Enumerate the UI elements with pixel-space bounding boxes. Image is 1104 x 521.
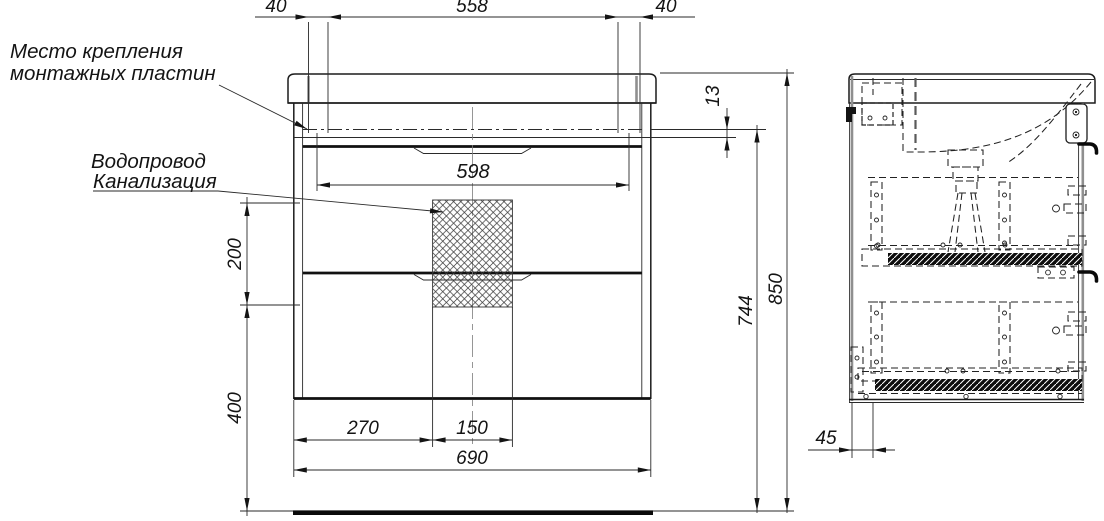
callouts: Место крепления монтажных пластин Водопр… — [10, 40, 443, 215]
dim-top-span: 558 — [456, 0, 488, 17]
pipe-zone-hatch — [433, 200, 513, 307]
dim-side-back-offset: 45 — [815, 428, 837, 449]
dim-plate-span: 598 — [456, 161, 489, 183]
extension-lines — [240, 22, 873, 477]
callout-mounting-line2: монтажных пластин — [10, 62, 216, 85]
dim-pipe-zone-left: 270 — [346, 418, 379, 439]
floor-line — [240, 511, 794, 513]
dim-plate-drop: 13 — [703, 85, 724, 107]
callout-mounting-line1: Место крепления — [10, 40, 183, 63]
side-view — [846, 74, 1097, 403]
dim-overall-height: 850 — [766, 273, 787, 305]
upper-drawer-slide — [862, 243, 1082, 278]
drain-siphon — [948, 150, 985, 252]
dim-mount-height: 744 — [736, 295, 757, 327]
plumbing-leader — [218, 191, 443, 212]
vanity-cabinet-drawing: 40 558 40 13 598 200 400 744 850 270 150… — [0, 0, 1104, 521]
side-mounting-plate-inner — [862, 103, 893, 125]
dim-pipe-zone-height: 200 — [225, 238, 246, 271]
dim-pipe-zone-width: 150 — [456, 418, 488, 439]
callout-plumbing-line2: Канализация — [93, 170, 217, 193]
hinge-plate — [1066, 104, 1087, 143]
basin-curve-outer — [903, 82, 1091, 152]
side-countertop — [849, 74, 1095, 103]
technical-drawing-page: 40 558 40 13 598 200 400 744 850 270 150… — [0, 0, 1104, 521]
dim-pipe-zone-floor-clearance: 400 — [225, 392, 246, 424]
dim-cabinet-width: 690 — [456, 448, 488, 469]
dimension-lines: 40 558 40 13 598 200 400 744 850 270 150… — [225, 0, 895, 516]
dim-top-left-offset: 40 — [265, 0, 287, 17]
washbasin-top — [288, 74, 656, 103]
front-view — [288, 74, 656, 447]
drawer-rails — [851, 182, 1010, 392]
lower-drawer-slide — [858, 368, 1082, 399]
wall-bracket — [846, 107, 856, 122]
dim-top-right-offset: 40 — [655, 0, 677, 17]
